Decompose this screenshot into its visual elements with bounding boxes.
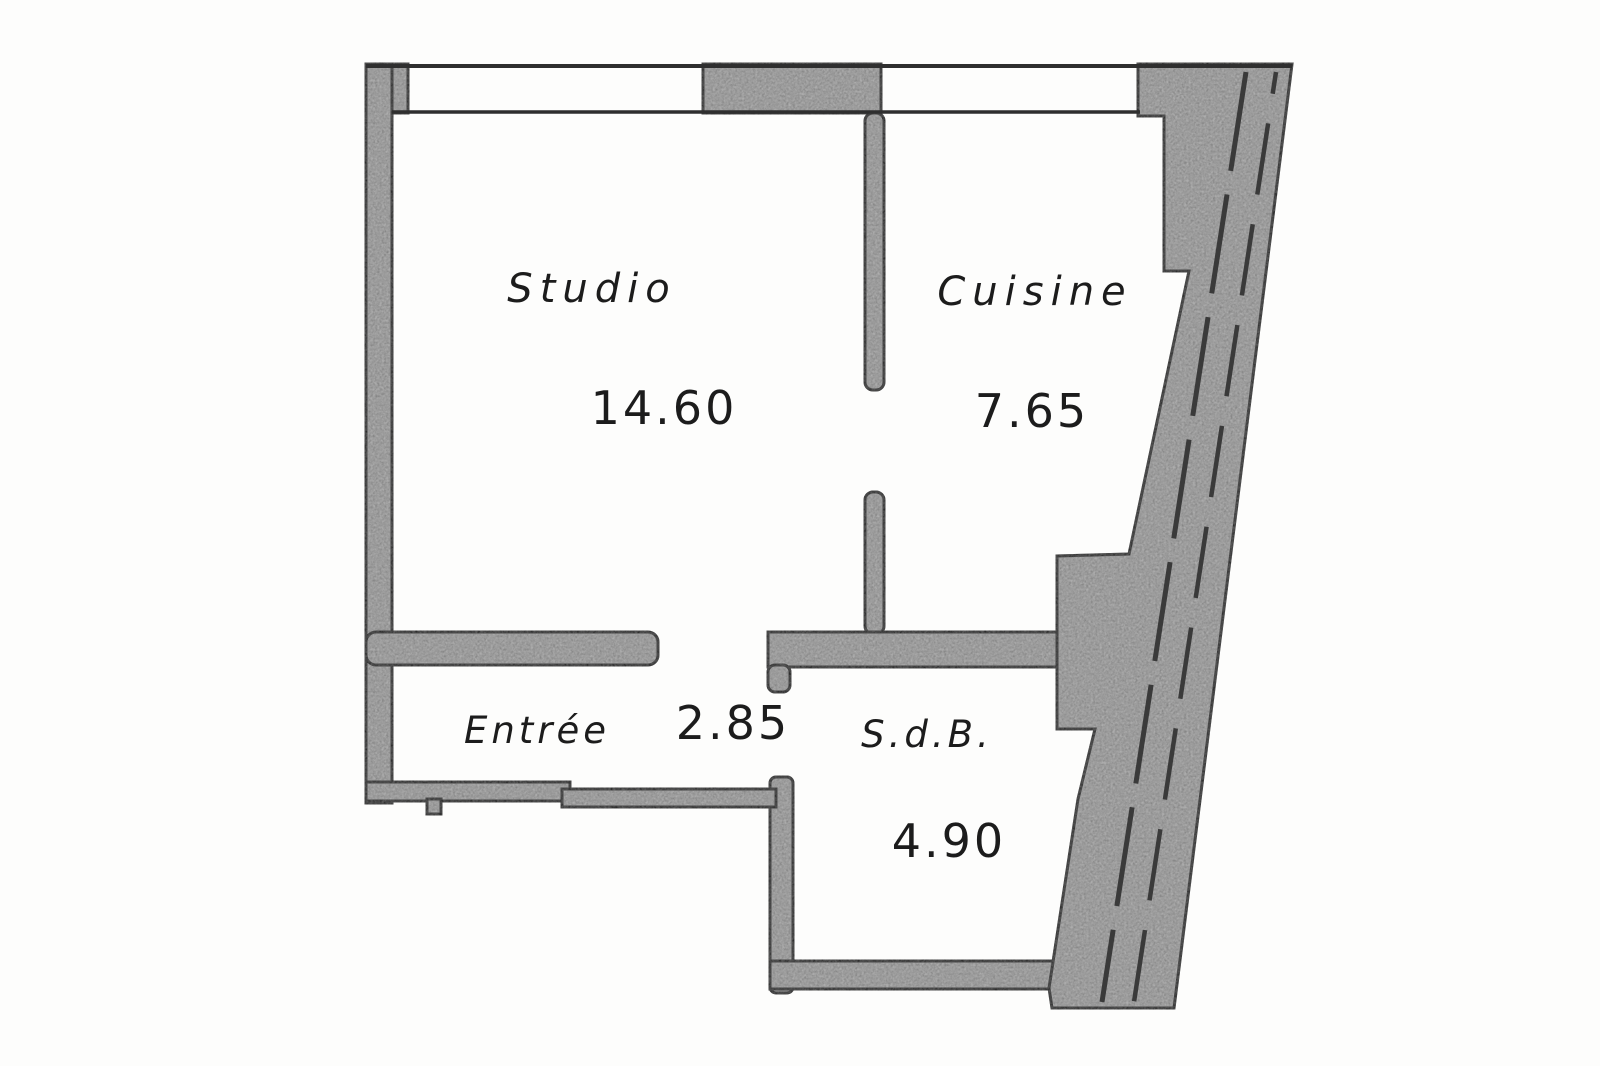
room-label-cuisine: Cuisine: [937, 269, 1132, 315]
room-label-studio: Studio: [507, 266, 676, 312]
room-labels: Studio 14.60 Cuisine 7.65 Entrée 2.85 S.…: [464, 266, 1133, 868]
wall-entree-bottom-left: [366, 782, 570, 801]
room-label-entree: Entrée: [464, 709, 610, 752]
floor-plan-drawing: Studio 14.60 Cuisine 7.65 Entrée 2.85 S.…: [0, 0, 1600, 1066]
wall-cuisine-sdb: [768, 632, 1060, 667]
wall-entry-door-stub: [427, 799, 441, 814]
wall-studio-entree: [366, 632, 658, 665]
room-area-sdb: 4.90: [892, 814, 1006, 868]
room-area-studio: 14.60: [591, 381, 738, 435]
wall-partition-studio-cuisine-lower: [865, 492, 884, 634]
room-label-sdb: S.d.B.: [861, 713, 993, 756]
wall-partition-studio-cuisine-upper: [865, 113, 884, 390]
wall-left-exterior: [366, 64, 392, 803]
room-area-cuisine: 7.65: [975, 384, 1089, 438]
wall-sdb-door-jamb: [768, 665, 790, 692]
room-area-entree: 2.85: [676, 696, 790, 750]
wall-entree-bottom-right: [562, 789, 776, 807]
wall-top-middle-pier: [703, 64, 881, 113]
wall-sdb-bottom: [770, 961, 1058, 989]
floor-plan-page: Studio 14.60 Cuisine 7.65 Entrée 2.85 S.…: [0, 0, 1600, 1066]
wall-right-angled: [1049, 64, 1292, 1008]
